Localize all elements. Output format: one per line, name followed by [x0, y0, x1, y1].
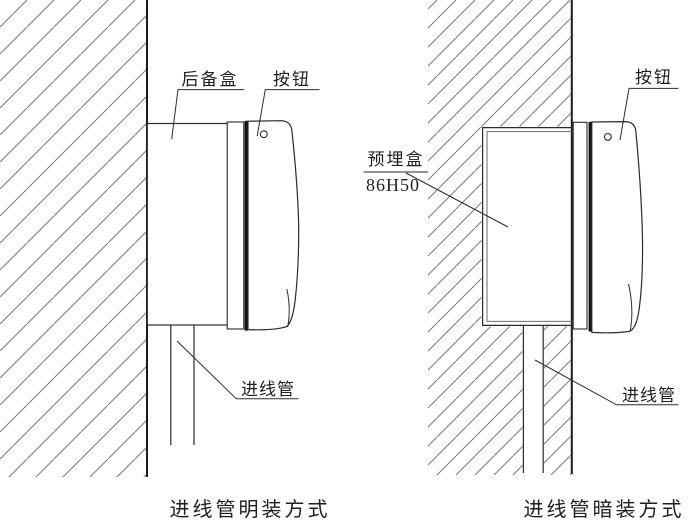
backup-box-label: 后备盒 — [174, 70, 246, 90]
conduit-channel — [523, 325, 545, 476]
embedded-box-label: 预埋盒 — [363, 150, 429, 170]
button-back-strip-right — [573, 122, 587, 329]
caption-left: 进线管明装方式 — [160, 498, 340, 522]
figure-canvas: 后备盒 按钮 进线管 进线管明装方式 预埋盒 86H50 按钮 进线管 进线管暗… — [0, 0, 698, 527]
left-wall-hatch — [0, 0, 146, 477]
button-dot-left — [260, 131, 267, 138]
button-dot-right — [604, 134, 611, 141]
button-back-strip-left — [227, 122, 244, 329]
embedded-box-cavity — [482, 127, 572, 327]
left-conduit-lines — [171, 326, 194, 446]
embedded-box-model-label: 86H50 — [366, 175, 428, 195]
button-plate-right — [592, 122, 643, 333]
conduit-label-left: 进线管 — [236, 380, 300, 400]
line-artwork — [0, 0, 698, 527]
caption-right: 进线管暗装方式 — [514, 498, 694, 522]
conduit-label-right: 进线管 — [616, 386, 682, 406]
button-label-left: 按钮 — [262, 70, 322, 90]
button-label-right: 按钮 — [626, 68, 682, 88]
button-plate-left — [248, 121, 299, 330]
backup-box — [147, 124, 228, 326]
